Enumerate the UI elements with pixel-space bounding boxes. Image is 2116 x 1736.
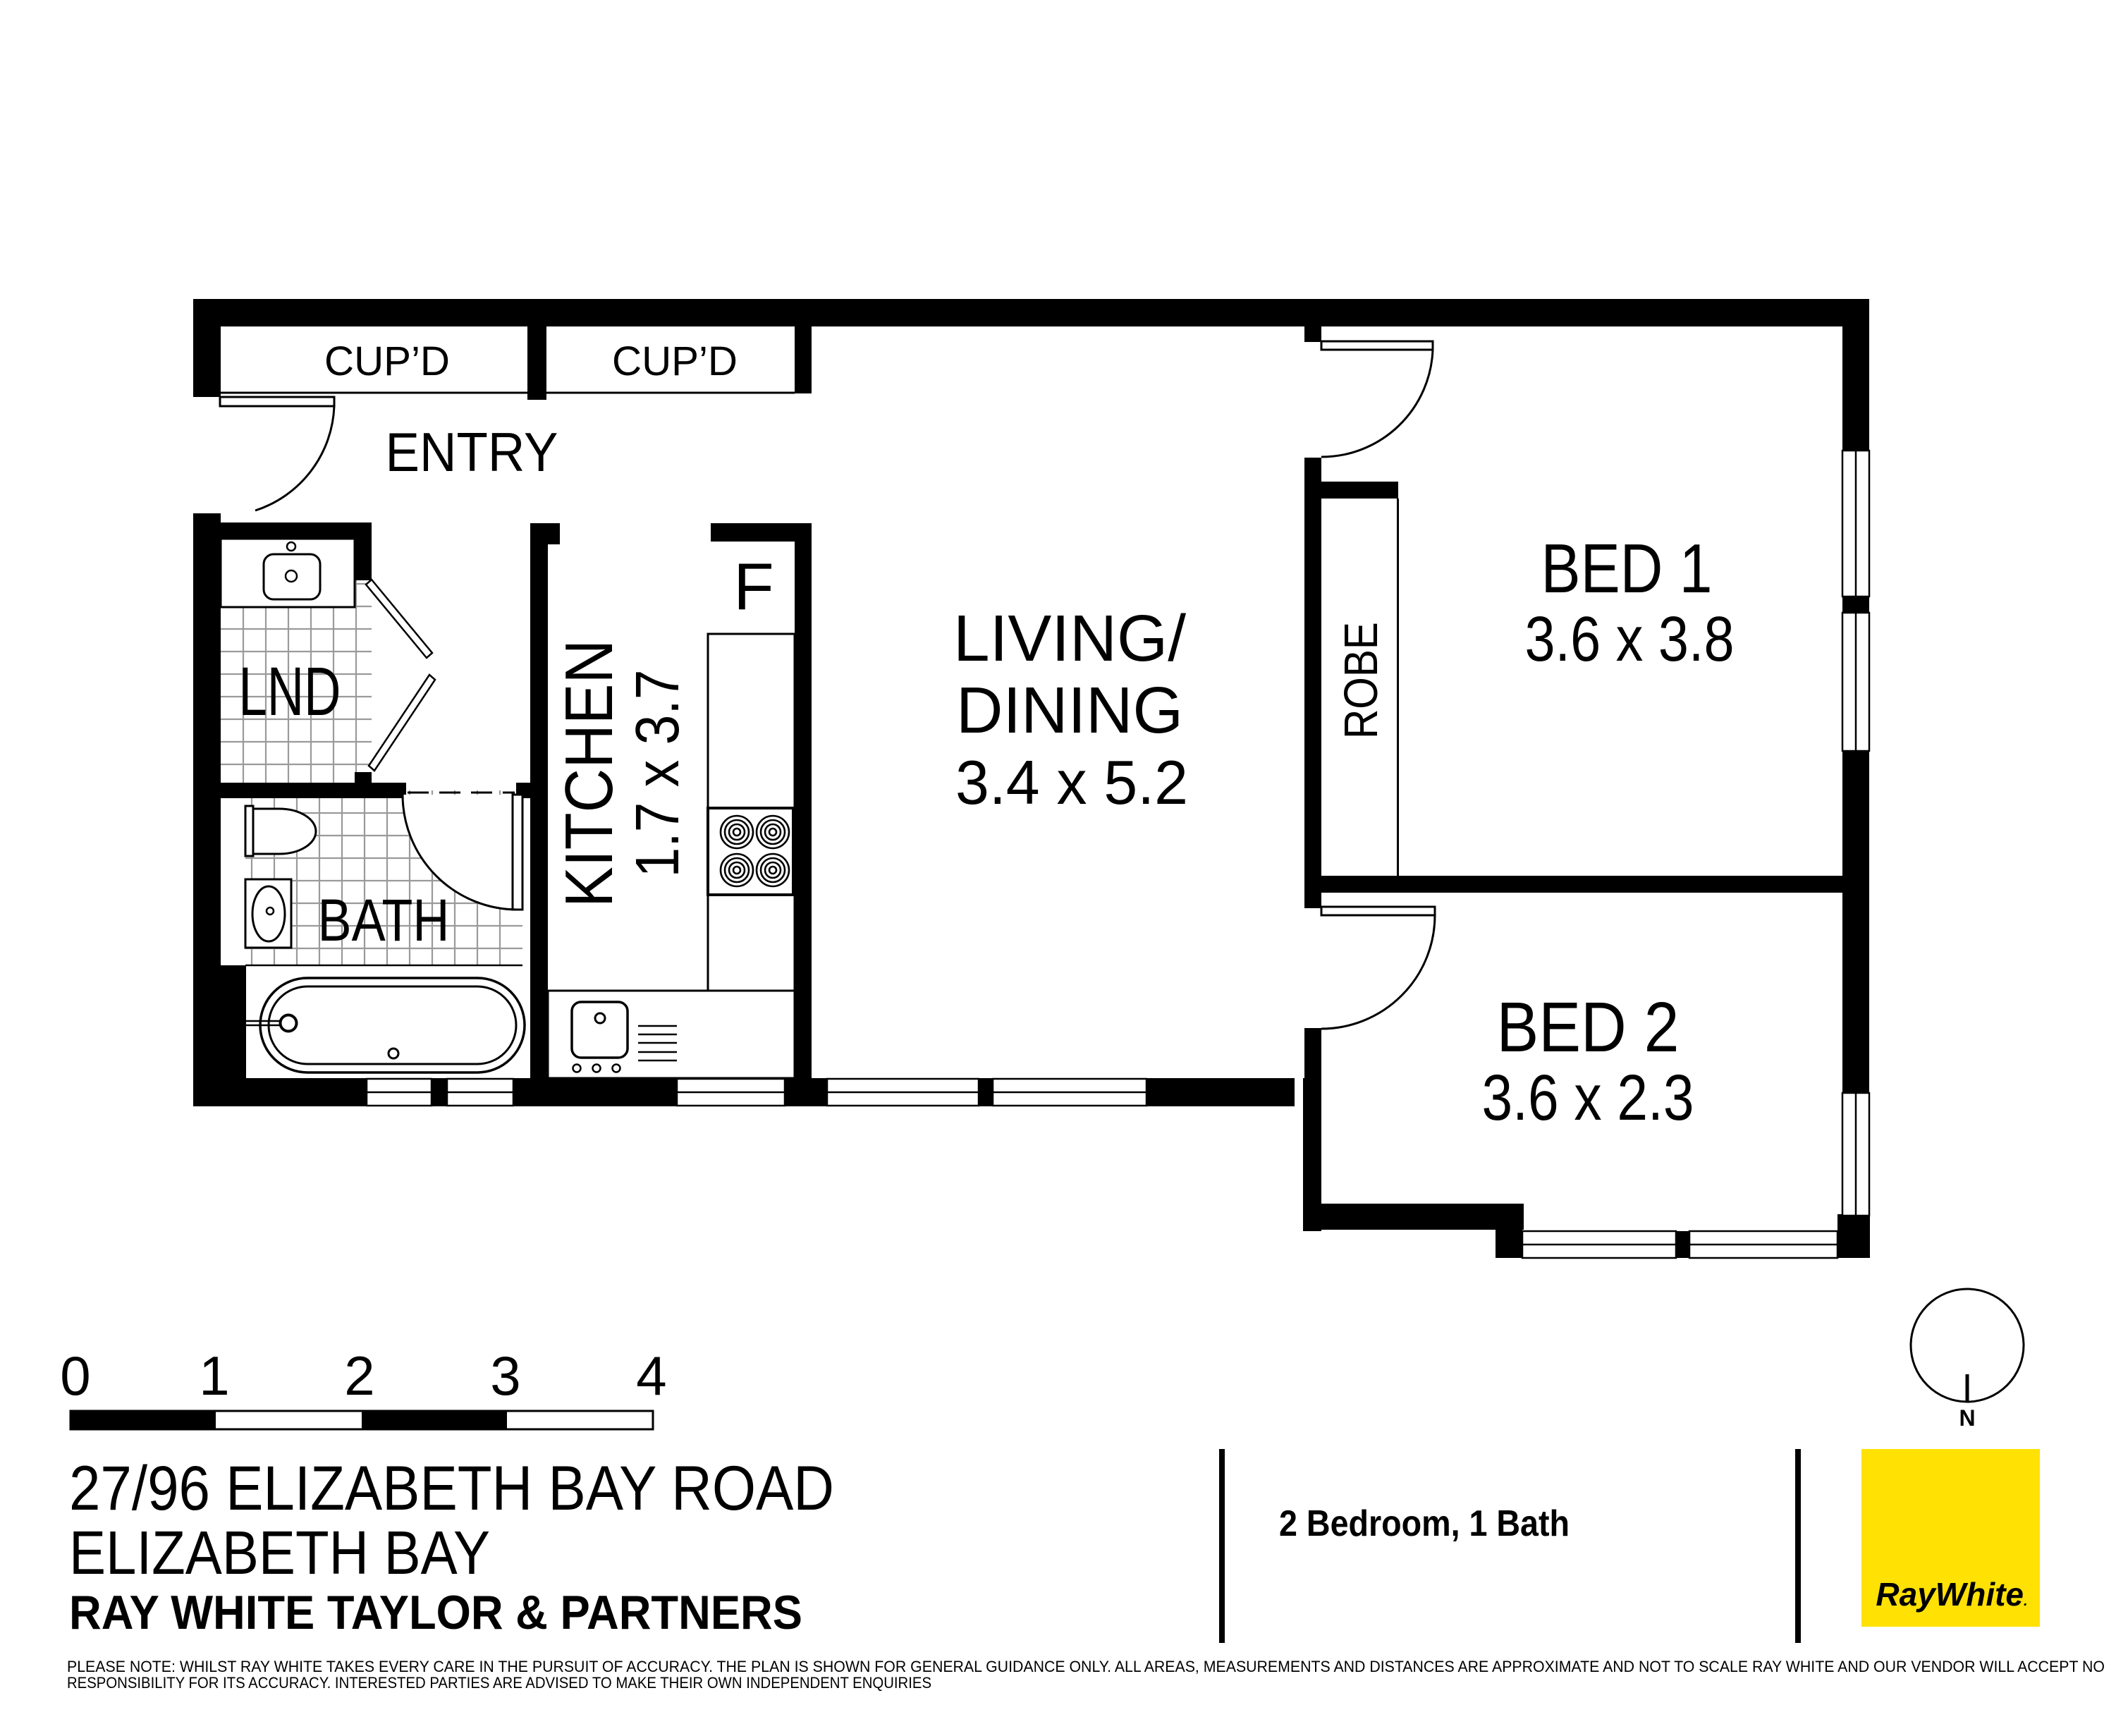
svg-text:ROBE: ROBE <box>1335 622 1388 739</box>
svg-text:DINING: DINING <box>956 673 1183 747</box>
svg-text:BED 2: BED 2 <box>1497 988 1680 1067</box>
svg-text:3.6 x 2.3: 3.6 x 2.3 <box>1482 1062 1694 1134</box>
svg-text:27/96 ELIZABETH BAY ROAD: 27/96 ELIZABETH BAY ROAD <box>69 1453 834 1523</box>
svg-text:RayWhite.: RayWhite. <box>1876 1576 2027 1613</box>
svg-text:RAY WHITE TAYLOR & PARTNERS: RAY WHITE TAYLOR & PARTNERS <box>69 1586 802 1639</box>
svg-text:BATH: BATH <box>318 887 450 953</box>
svg-text:LIVING/: LIVING/ <box>953 601 1186 675</box>
svg-text:ENTRY: ENTRY <box>386 421 558 483</box>
svg-text:N: N <box>1959 1405 1975 1431</box>
svg-text:CUP’D: CUP’D <box>324 338 450 384</box>
svg-text:1: 1 <box>199 1345 229 1407</box>
svg-text:3.6 x 3.8: 3.6 x 3.8 <box>1525 604 1735 675</box>
svg-text:3: 3 <box>490 1345 520 1407</box>
svg-text:ELIZABETH BAY: ELIZABETH BAY <box>69 1519 490 1587</box>
svg-text:CUP’D: CUP’D <box>612 338 738 384</box>
svg-text:LND: LND <box>239 653 341 730</box>
svg-text:2 Bedroom, 1 Bath: 2 Bedroom, 1 Bath <box>1279 1503 1570 1544</box>
svg-text:1.7 x 3.7: 1.7 x 3.7 <box>623 670 692 878</box>
svg-text:3.4 x 5.2: 3.4 x 5.2 <box>955 747 1188 817</box>
svg-text:2: 2 <box>344 1345 374 1407</box>
svg-text:0: 0 <box>60 1345 90 1407</box>
svg-text:BED 1: BED 1 <box>1541 530 1713 607</box>
svg-text:F: F <box>733 549 773 623</box>
svg-text:PLEASE NOTE: WHILST RAY WHITE: PLEASE NOTE: WHILST RAY WHITE TAKES EVER… <box>67 1658 2105 1675</box>
svg-text:RESPONSIBILITY FOR ITS ACCURAC: RESPONSIBILITY FOR ITS ACCURACY. INTERES… <box>67 1674 931 1692</box>
svg-text:KITCHEN: KITCHEN <box>551 640 627 907</box>
svg-text:4: 4 <box>636 1345 666 1407</box>
